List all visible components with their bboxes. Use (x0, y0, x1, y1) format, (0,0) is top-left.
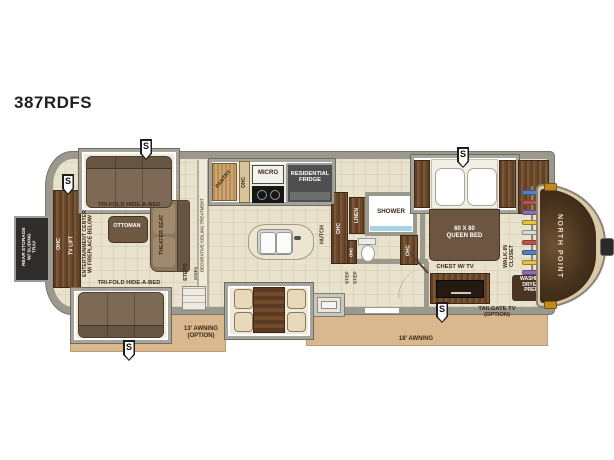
nightstand-right (499, 160, 516, 208)
bed-pillow (467, 168, 497, 206)
queen-bed-label: 60 X 80 QUEEN BED (429, 226, 500, 239)
rear-storage-label: REAR STORAGE W/ SLIDING TRAY (15, 218, 45, 276)
living-steps-label: STEPS (182, 258, 192, 286)
stabilizer-badge: S (457, 147, 469, 168)
linen-label: LINEN (351, 201, 364, 230)
living-steps-small-label: STEPS (192, 260, 200, 286)
chest-tv-label: CHEST W/ TV (422, 264, 488, 270)
toilet-tank (358, 238, 376, 245)
ceiling-treatment-label: DECORATIVE CEILING TREATMENT (199, 168, 207, 302)
entry-door-threshold (364, 307, 400, 314)
stabilizer-badge: S (140, 139, 152, 160)
hutch-ohc-label: OHC (333, 210, 346, 246)
bath-ohc-label: OHC (404, 238, 414, 262)
north-point-brand: NORTH POINT (552, 200, 566, 292)
awning-13-label: 13' AWNING (OPTION) (158, 326, 244, 339)
cooktop (252, 186, 284, 203)
theater-seat-label: THEATER SEAT (157, 206, 169, 264)
hitch-knob (600, 238, 614, 256)
microwave-label: MICRO (252, 170, 284, 177)
island-sink (257, 229, 293, 255)
toilet-ohc-label: OHC (348, 242, 356, 262)
kitchen-ohc-label: OHC (240, 164, 249, 200)
entry-steps (313, 293, 345, 317)
stabilizer-badge: S (436, 302, 448, 323)
living-steps (182, 286, 206, 311)
tv-lift-label: TV LIFT (67, 220, 78, 270)
entry-step2-label: STEP (352, 266, 360, 290)
trifold-sofa-top (86, 156, 172, 208)
dinette-chair (287, 312, 306, 332)
nightstand-left (414, 160, 430, 208)
trifold-sofa-bottom (78, 292, 164, 338)
trifold-bottom-label: TRI-FOLD HIDE-A-BED (84, 280, 174, 286)
floorplan-canvas: 387RDFS REAR STORAGE W/ SLIDING TRAY DEC… (0, 0, 614, 460)
tailgate-tv-label: TAILGATE TV (OPTION) (460, 306, 534, 319)
hutch-label: HUTCH (318, 218, 329, 252)
fridge-label: RESIDENTIAL FRIDGE (286, 171, 334, 184)
entertainment-center-label: ENTERTAINMENT CENTER W/ FIREPLACE BELOW (80, 196, 97, 292)
bed-pillow (435, 168, 465, 206)
dinette-chair (234, 289, 253, 309)
ottoman-label: OTTOMAN (108, 224, 146, 230)
dinette-chair (287, 289, 306, 309)
shower-label: SHOWER (365, 209, 417, 216)
front-cap-hinge-top (544, 183, 557, 191)
model-title: 387RDFS (14, 94, 92, 113)
stabilizer-badge: S (123, 340, 135, 361)
dinette-table (253, 287, 285, 333)
ohc-living-label: OHC (55, 222, 65, 266)
front-cap-hinge-bottom (544, 301, 557, 309)
awning-18-label: 18' AWNING (374, 336, 458, 343)
chest-tv (430, 273, 490, 304)
toilet-bowl (361, 245, 375, 262)
island-faucet (294, 236, 301, 240)
stabilizer-badge: S (62, 174, 74, 195)
entry-step1-label: STEP (344, 266, 352, 290)
